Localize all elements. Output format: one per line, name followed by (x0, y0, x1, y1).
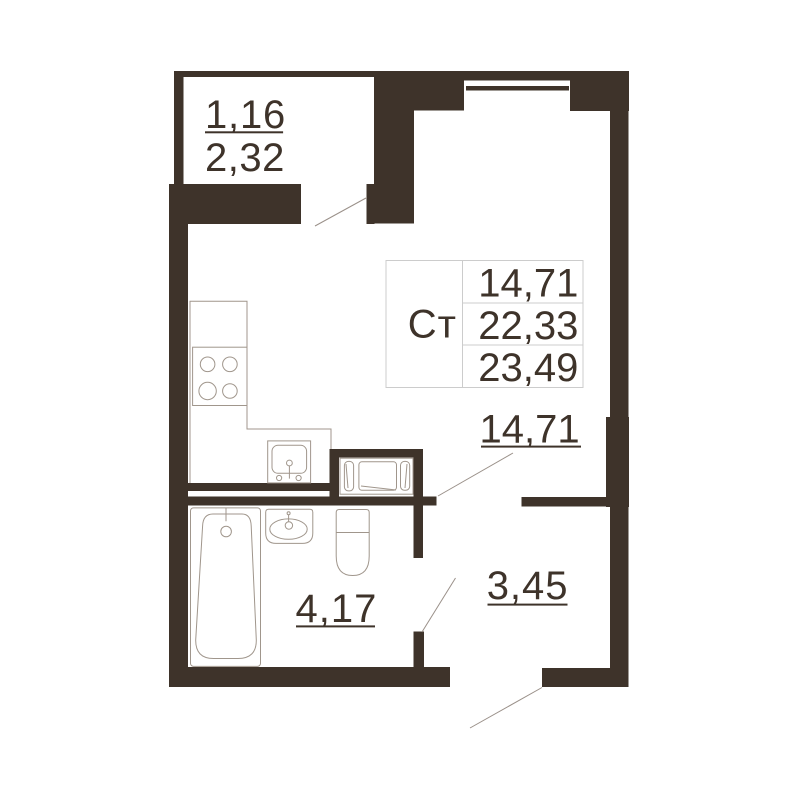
svg-text:1,16: 1,16 (205, 93, 286, 137)
svg-text:14,71: 14,71 (480, 407, 580, 451)
svg-text:2,32: 2,32 (205, 136, 285, 180)
svg-text:3,45: 3,45 (487, 564, 569, 608)
svg-text:23,49: 23,49 (478, 346, 578, 390)
svg-text:Ст: Ст (408, 303, 457, 347)
svg-text:22,33: 22,33 (478, 304, 578, 348)
svg-text:14,71: 14,71 (478, 262, 578, 306)
svg-text:4,17: 4,17 (296, 587, 378, 631)
